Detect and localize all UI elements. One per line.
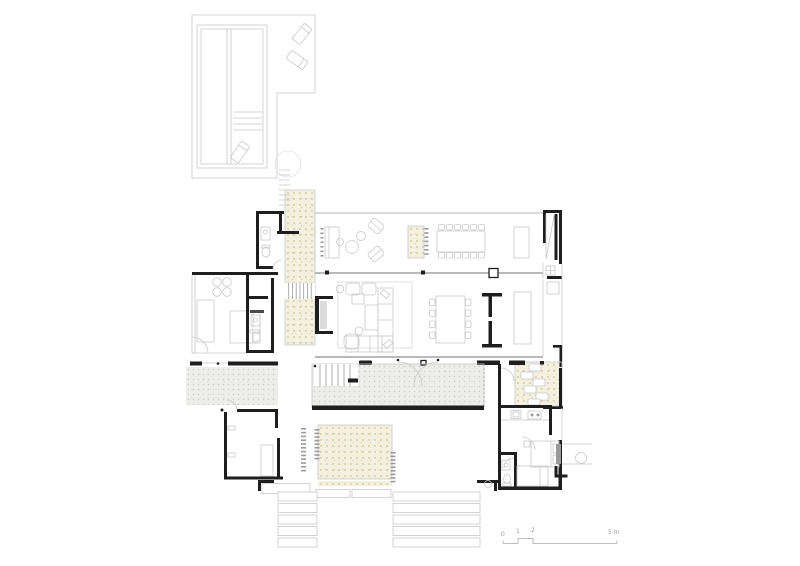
utility-room <box>256 211 299 269</box>
island-counter <box>514 292 531 344</box>
gravel-strip-edges <box>285 190 315 345</box>
door-pivot-box <box>489 269 498 278</box>
planter-outline <box>408 226 424 258</box>
terrace-steps <box>314 364 358 386</box>
side-table <box>524 441 530 447</box>
sofa <box>346 336 393 352</box>
pool-steps <box>233 112 262 130</box>
west-wing <box>192 211 299 353</box>
kitchen-counter <box>501 411 549 421</box>
wardrobe <box>197 300 214 342</box>
sun-lounger <box>230 141 250 163</box>
toilet <box>262 247 270 257</box>
vanity-counter <box>250 310 264 313</box>
hedge <box>315 429 320 459</box>
scale-label-0: 0 <box>501 531 505 538</box>
garden-steps-west <box>278 492 317 547</box>
pool-lane-line <box>227 29 231 164</box>
dining-chairs <box>439 225 485 259</box>
scale-label-5m: 5 m <box>608 529 620 536</box>
south-glazing <box>190 357 543 386</box>
plan-linework: 0 1 2 5 m <box>0 0 800 566</box>
garden-access-steps <box>275 151 301 205</box>
bedroom <box>192 272 278 353</box>
stepping-stone <box>528 399 540 405</box>
living-hall <box>190 264 562 408</box>
pouf <box>357 232 366 241</box>
walkway-stone <box>352 490 391 498</box>
pouf <box>346 241 359 254</box>
stepping-stone <box>533 379 545 386</box>
southeast-wing <box>498 405 592 490</box>
wash-basin <box>261 227 270 240</box>
sliding-door-panel <box>509 361 525 366</box>
scale-label-1: 1 <box>516 528 520 535</box>
carport-column <box>576 453 587 464</box>
hedge <box>391 452 396 482</box>
sofa-group <box>336 283 393 352</box>
scale-label-2: 2 <box>531 527 535 534</box>
toilet <box>504 475 511 484</box>
bed <box>531 441 559 467</box>
scale-bar: 0 1 2 5 m <box>501 527 620 544</box>
stepping-stone <box>529 364 541 371</box>
bed <box>517 466 548 486</box>
dining-table-12 <box>437 231 485 252</box>
stepping-stone <box>524 386 536 393</box>
kitchen-island <box>514 227 529 258</box>
door-pivot <box>221 409 224 412</box>
door-swing <box>192 337 208 353</box>
wash-basin <box>251 315 260 326</box>
glazing-mullion <box>421 271 425 275</box>
bed <box>230 311 260 343</box>
sideboard-knobs <box>321 228 324 257</box>
lounge-chair <box>367 245 385 262</box>
stair-core <box>543 210 562 264</box>
southwest-storage-room <box>221 400 311 494</box>
armchair <box>362 283 376 295</box>
lounge-chair <box>367 217 385 234</box>
tree-canopy <box>275 151 301 177</box>
bathroom-se <box>502 458 514 486</box>
stepping-stones <box>498 361 562 491</box>
pool-deck-outline <box>192 15 315 178</box>
sun-lounger <box>292 23 312 45</box>
armchair <box>346 283 360 295</box>
door-swing <box>504 458 514 468</box>
terrace-edge <box>312 406 484 411</box>
swimming-pool <box>197 25 267 168</box>
door-swing <box>398 362 438 386</box>
side-table <box>336 285 344 293</box>
ottoman <box>355 327 363 335</box>
stepping-stone <box>521 372 533 379</box>
upper-pavilion <box>315 210 562 279</box>
planter-marks <box>425 228 429 255</box>
wc-room <box>543 263 562 279</box>
south-garden <box>315 425 396 498</box>
sun-lounger <box>286 50 308 70</box>
garden-steps-east <box>393 492 480 547</box>
dining-table-8 <box>436 296 465 343</box>
door-swing <box>227 400 237 410</box>
bistro-table-chairs <box>213 278 232 297</box>
glazing-mullion <box>325 271 329 275</box>
hedge <box>301 428 306 471</box>
coffee-table <box>365 305 378 330</box>
pool-terrace <box>192 15 315 178</box>
floor-plan: 0 1 2 5 m <box>0 0 800 566</box>
rug <box>338 282 412 348</box>
walkway-stone <box>316 490 350 498</box>
swimming-pool-inner <box>201 29 263 164</box>
steel-column <box>482 293 502 348</box>
fireplace <box>315 296 333 334</box>
